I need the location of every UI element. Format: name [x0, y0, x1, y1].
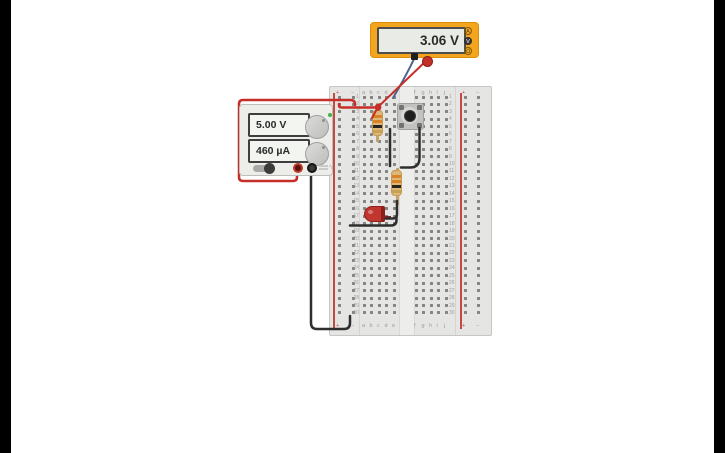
breadboard-hole[interactable]	[385, 200, 388, 203]
breadboard-hole[interactable]	[477, 237, 480, 240]
breadboard-hole[interactable]	[477, 200, 480, 203]
breadboard-hole[interactable]	[445, 237, 448, 240]
breadboard-hole[interactable]	[445, 207, 448, 210]
breadboard-hole[interactable]	[437, 185, 440, 188]
breadboard-hole[interactable]	[445, 311, 448, 314]
breadboard-hole[interactable]	[437, 133, 440, 136]
breadboard-hole[interactable]	[422, 133, 425, 136]
breadboard-hole[interactable]	[464, 192, 467, 195]
breadboard-hole[interactable]	[477, 96, 480, 99]
pushbutton-cap[interactable]	[404, 110, 416, 122]
breadboard-hole[interactable]	[338, 118, 341, 121]
breadboard-hole[interactable]	[445, 215, 448, 218]
breadboard-hole[interactable]	[437, 267, 440, 270]
breadboard-hole[interactable]	[430, 311, 433, 314]
breadboard-hole[interactable]	[437, 148, 440, 151]
breadboard-hole[interactable]	[464, 148, 467, 151]
breadboard-hole[interactable]	[385, 155, 388, 158]
breadboard-hole[interactable]	[338, 110, 341, 113]
breadboard-hole[interactable]	[338, 297, 341, 300]
breadboard-hole[interactable]	[378, 96, 381, 99]
breadboard-hole[interactable]	[437, 289, 440, 292]
breadboard-hole[interactable]	[445, 289, 448, 292]
breadboard-hole[interactable]	[445, 110, 448, 113]
breadboard-hole[interactable]	[370, 222, 373, 225]
breadboard-hole[interactable]	[464, 267, 467, 270]
breadboard-hole[interactable]	[464, 96, 467, 99]
breadboard-hole[interactable]	[370, 177, 373, 180]
breadboard-hole[interactable]	[378, 200, 381, 203]
breadboard-hole[interactable]	[437, 140, 440, 143]
breadboard-hole[interactable]	[363, 244, 366, 247]
breadboard-hole[interactable]	[378, 237, 381, 240]
breadboard-hole[interactable]	[422, 215, 425, 218]
breadboard-hole[interactable]	[378, 170, 381, 173]
breadboard-hole[interactable]	[437, 252, 440, 255]
breadboard-hole[interactable]	[437, 200, 440, 203]
breadboard-hole[interactable]	[430, 282, 433, 285]
breadboard-hole[interactable]	[477, 133, 480, 136]
breadboard-hole[interactable]	[363, 282, 366, 285]
breadboard-hole[interactable]	[422, 170, 425, 173]
breadboard-hole[interactable]	[477, 311, 480, 314]
breadboard-hole[interactable]	[437, 282, 440, 285]
breadboard-hole[interactable]	[393, 155, 396, 158]
breadboard-hole[interactable]	[338, 274, 341, 277]
breadboard-hole[interactable]	[338, 267, 341, 270]
breadboard-hole[interactable]	[477, 148, 480, 151]
breadboard-hole[interactable]	[477, 259, 480, 262]
breadboard-hole[interactable]	[422, 274, 425, 277]
breadboard-hole[interactable]	[393, 222, 396, 225]
breadboard-hole[interactable]	[477, 297, 480, 300]
breadboard-hole[interactable]	[437, 244, 440, 247]
breadboard-hole[interactable]	[338, 200, 341, 203]
breadboard-hole[interactable]	[370, 163, 373, 166]
breadboard-hole[interactable]	[477, 140, 480, 143]
breadboard-hole[interactable]	[422, 259, 425, 262]
breadboard-hole[interactable]	[363, 304, 366, 307]
breadboard-hole[interactable]	[422, 244, 425, 247]
breadboard-hole[interactable]	[363, 274, 366, 277]
breadboard-hole[interactable]	[370, 185, 373, 188]
breadboard-hole[interactable]	[445, 252, 448, 255]
breadboard-hole[interactable]	[370, 192, 373, 195]
breadboard-hole[interactable]	[464, 252, 467, 255]
breadboard-hole[interactable]	[378, 282, 381, 285]
breadboard-hole[interactable]	[385, 103, 388, 106]
breadboard-hole[interactable]	[445, 244, 448, 247]
breadboard-hole[interactable]	[370, 297, 373, 300]
breadboard-hole[interactable]	[338, 170, 341, 173]
breadboard-hole[interactable]	[393, 163, 396, 166]
breadboard-hole[interactable]	[385, 140, 388, 143]
breadboard-hole[interactable]	[385, 237, 388, 240]
breadboard-hole[interactable]	[393, 125, 396, 128]
breadboard-hole[interactable]	[430, 155, 433, 158]
breadboard-hole[interactable]	[370, 282, 373, 285]
breadboard-hole[interactable]	[437, 230, 440, 233]
breadboard-hole[interactable]	[385, 267, 388, 270]
breadboard-hole[interactable]	[393, 215, 396, 218]
breadboard-hole[interactable]	[464, 297, 467, 300]
breadboard-hole[interactable]	[415, 163, 418, 166]
breadboard-hole[interactable]	[393, 118, 396, 121]
breadboard-hole[interactable]	[464, 103, 467, 106]
breadboard-hole[interactable]	[464, 170, 467, 173]
breadboard-hole[interactable]	[437, 215, 440, 218]
breadboard-hole[interactable]	[338, 215, 341, 218]
breadboard-hole[interactable]	[430, 297, 433, 300]
breadboard-hole[interactable]	[363, 96, 366, 99]
breadboard-hole[interactable]	[363, 155, 366, 158]
breadboard-hole[interactable]	[477, 155, 480, 158]
breadboard-hole[interactable]	[464, 274, 467, 277]
breadboard-hole[interactable]	[415, 155, 418, 158]
breadboard-hole[interactable]	[430, 289, 433, 292]
breadboard-hole[interactable]	[415, 177, 418, 180]
breadboard-hole[interactable]	[363, 252, 366, 255]
breadboard-hole[interactable]	[477, 222, 480, 225]
breadboard-hole[interactable]	[415, 170, 418, 173]
multimeter-red-probe[interactable]	[422, 56, 433, 67]
breadboard-hole[interactable]	[393, 103, 396, 106]
breadboard-hole[interactable]	[363, 259, 366, 262]
breadboard-hole[interactable]	[437, 237, 440, 240]
breadboard-hole[interactable]	[393, 244, 396, 247]
breadboard-hole[interactable]	[363, 192, 366, 195]
breadboard-hole[interactable]	[464, 237, 467, 240]
breadboard-hole[interactable]	[464, 155, 467, 158]
breadboard-hole[interactable]	[370, 96, 373, 99]
breadboard-hole[interactable]	[393, 289, 396, 292]
breadboard-hole[interactable]	[338, 259, 341, 262]
breadboard-hole[interactable]	[370, 200, 373, 203]
breadboard-hole[interactable]	[445, 222, 448, 225]
breadboard-hole[interactable]	[385, 289, 388, 292]
breadboard-hole[interactable]	[430, 207, 433, 210]
breadboard-hole[interactable]	[430, 252, 433, 255]
breadboard-hole[interactable]	[393, 252, 396, 255]
breadboard-hole[interactable]	[378, 259, 381, 262]
breadboard-hole[interactable]	[378, 274, 381, 277]
breadboard-hole[interactable]	[393, 274, 396, 277]
breadboard-hole[interactable]	[445, 297, 448, 300]
breadboard-hole[interactable]	[477, 185, 480, 188]
breadboard-hole[interactable]	[338, 289, 341, 292]
breadboard-hole[interactable]	[415, 230, 418, 233]
breadboard-hole[interactable]	[370, 244, 373, 247]
breadboard-hole[interactable]	[445, 148, 448, 151]
breadboard-hole[interactable]	[430, 96, 433, 99]
breadboard-hole[interactable]	[437, 297, 440, 300]
breadboard-hole[interactable]	[464, 215, 467, 218]
breadboard-hole[interactable]	[363, 237, 366, 240]
breadboard-hole[interactable]	[385, 304, 388, 307]
breadboard-hole[interactable]	[430, 133, 433, 136]
breadboard-hole[interactable]	[338, 244, 341, 247]
breadboard-hole[interactable]	[393, 148, 396, 151]
breadboard-hole[interactable]	[363, 289, 366, 292]
breadboard-hole[interactable]	[430, 177, 433, 180]
psu-voltage-knob[interactable]	[305, 115, 329, 139]
breadboard-hole[interactable]	[464, 207, 467, 210]
breadboard-hole[interactable]	[430, 200, 433, 203]
breadboard-hole[interactable]	[378, 192, 381, 195]
breadboard-hole[interactable]	[477, 304, 480, 307]
breadboard-hole[interactable]	[422, 148, 425, 151]
breadboard-hole[interactable]	[363, 170, 366, 173]
breadboard-hole[interactable]	[422, 297, 425, 300]
breadboard-hole[interactable]	[445, 274, 448, 277]
breadboard-hole[interactable]	[430, 267, 433, 270]
breadboard-hole[interactable]	[385, 297, 388, 300]
breadboard-hole[interactable]	[338, 282, 341, 285]
breadboard-hole[interactable]	[437, 177, 440, 180]
breadboard-hole[interactable]	[378, 148, 381, 151]
breadboard-hole[interactable]	[437, 207, 440, 210]
psu-positive-terminal[interactable]	[293, 163, 303, 173]
breadboard-hole[interactable]	[437, 304, 440, 307]
breadboard-hole[interactable]	[464, 185, 467, 188]
breadboard-hole[interactable]	[393, 282, 396, 285]
breadboard-hole[interactable]	[430, 103, 433, 106]
breadboard-hole[interactable]	[338, 133, 341, 136]
breadboard-hole[interactable]	[464, 259, 467, 262]
breadboard-hole[interactable]	[415, 140, 418, 143]
breadboard-hole[interactable]	[385, 170, 388, 173]
breadboard-hole[interactable]	[370, 311, 373, 314]
breadboard-hole[interactable]	[370, 103, 373, 106]
breadboard-hole[interactable]	[385, 185, 388, 188]
breadboard-hole[interactable]	[445, 118, 448, 121]
breadboard-hole[interactable]	[464, 133, 467, 136]
breadboard-hole[interactable]	[363, 297, 366, 300]
breadboard-hole[interactable]	[338, 230, 341, 233]
power-supply[interactable]: 5.00 V 460 µA ϟ	[239, 104, 333, 176]
breadboard-hole[interactable]	[393, 140, 396, 143]
breadboard-hole[interactable]	[477, 230, 480, 233]
breadboard-hole[interactable]	[415, 215, 418, 218]
multimeter[interactable]: 3.06 V AVΩ	[370, 22, 479, 58]
breadboard-hole[interactable]	[445, 230, 448, 233]
breadboard-hole[interactable]	[338, 103, 341, 106]
breadboard-hole[interactable]	[430, 259, 433, 262]
breadboard-hole[interactable]	[422, 311, 425, 314]
breadboard-hole[interactable]	[378, 267, 381, 270]
breadboard-hole[interactable]	[464, 110, 467, 113]
breadboard-hole[interactable]	[464, 200, 467, 203]
breadboard-hole[interactable]	[437, 222, 440, 225]
breadboard-hole[interactable]	[415, 297, 418, 300]
multimeter-mode-V[interactable]: V	[464, 37, 472, 45]
breadboard-hole[interactable]	[430, 140, 433, 143]
breadboard-hole[interactable]	[338, 96, 341, 99]
breadboard-hole[interactable]	[415, 289, 418, 292]
breadboard-hole[interactable]	[338, 148, 341, 151]
breadboard-hole[interactable]	[370, 304, 373, 307]
breadboard-hole[interactable]	[477, 163, 480, 166]
breadboard-hole[interactable]	[363, 311, 366, 314]
breadboard-hole[interactable]	[393, 230, 396, 233]
breadboard-hole[interactable]	[445, 133, 448, 136]
breadboard-hole[interactable]	[437, 170, 440, 173]
breadboard-hole[interactable]	[430, 215, 433, 218]
breadboard-hole[interactable]	[437, 155, 440, 158]
breadboard-hole[interactable]	[415, 274, 418, 277]
breadboard-hole[interactable]	[477, 170, 480, 173]
breadboard-hole[interactable]	[385, 282, 388, 285]
breadboard-hole[interactable]	[477, 215, 480, 218]
breadboard-hole[interactable]	[422, 163, 425, 166]
breadboard-hole[interactable]	[430, 230, 433, 233]
breadboard-hole[interactable]	[338, 140, 341, 143]
breadboard-hole[interactable]	[422, 230, 425, 233]
breadboard-hole[interactable]	[464, 230, 467, 233]
breadboard-hole[interactable]	[363, 222, 366, 225]
breadboard-hole[interactable]	[385, 244, 388, 247]
breadboard-hole[interactable]	[385, 125, 388, 128]
breadboard-hole[interactable]	[464, 177, 467, 180]
breadboard-hole[interactable]	[437, 259, 440, 262]
breadboard-hole[interactable]	[415, 304, 418, 307]
breadboard-hole[interactable]	[385, 311, 388, 314]
breadboard-hole[interactable]	[445, 200, 448, 203]
breadboard-hole[interactable]	[370, 289, 373, 292]
breadboard-hole[interactable]	[477, 267, 480, 270]
breadboard-hole[interactable]	[363, 133, 366, 136]
breadboard-hole[interactable]	[422, 289, 425, 292]
breadboard-hole[interactable]	[445, 170, 448, 173]
breadboard-hole[interactable]	[363, 140, 366, 143]
breadboard-hole[interactable]	[430, 192, 433, 195]
multimeter-mode-Ω[interactable]: Ω	[464, 47, 472, 55]
breadboard-hole[interactable]	[385, 163, 388, 166]
breadboard-hole[interactable]	[437, 125, 440, 128]
breadboard-hole[interactable]	[422, 155, 425, 158]
breadboard-hole[interactable]	[378, 155, 381, 158]
breadboard-hole[interactable]	[385, 252, 388, 255]
breadboard-hole[interactable]	[393, 267, 396, 270]
breadboard-hole[interactable]	[338, 163, 341, 166]
breadboard-hole[interactable]	[385, 259, 388, 262]
breadboard-hole[interactable]	[445, 259, 448, 262]
breadboard-hole[interactable]	[378, 185, 381, 188]
pushbutton-pin[interactable]	[399, 123, 404, 128]
breadboard-hole[interactable]	[464, 222, 467, 225]
breadboard-hole[interactable]	[338, 222, 341, 225]
breadboard-hole[interactable]	[415, 252, 418, 255]
breadboard-hole[interactable]	[445, 163, 448, 166]
breadboard-hole[interactable]	[415, 200, 418, 203]
breadboard-hole[interactable]	[422, 282, 425, 285]
breadboard-hole[interactable]	[338, 237, 341, 240]
breadboard-hole[interactable]	[477, 207, 480, 210]
breadboard-hole[interactable]	[445, 185, 448, 188]
breadboard-hole[interactable]	[378, 297, 381, 300]
breadboard-hole[interactable]	[464, 163, 467, 166]
breadboard-hole[interactable]	[378, 289, 381, 292]
breadboard-hole[interactable]	[363, 267, 366, 270]
breadboard-hole[interactable]	[445, 96, 448, 99]
breadboard-hole[interactable]	[464, 282, 467, 285]
breadboard-hole[interactable]	[477, 282, 480, 285]
breadboard-hole[interactable]	[422, 222, 425, 225]
breadboard-hole[interactable]	[445, 140, 448, 143]
breadboard-hole[interactable]	[370, 148, 373, 151]
breadboard-hole[interactable]	[477, 118, 480, 121]
breadboard-hole[interactable]	[415, 222, 418, 225]
breadboard-hole[interactable]	[422, 207, 425, 210]
breadboard-hole[interactable]	[393, 207, 396, 210]
breadboard-hole[interactable]	[415, 267, 418, 270]
breadboard-hole[interactable]	[385, 192, 388, 195]
breadboard-hole[interactable]	[393, 110, 396, 113]
breadboard-hole[interactable]	[430, 148, 433, 151]
breadboard-hole[interactable]	[437, 311, 440, 314]
breadboard-hole[interactable]	[370, 140, 373, 143]
breadboard-hole[interactable]	[422, 200, 425, 203]
breadboard-hole[interactable]	[370, 230, 373, 233]
breadboard-hole[interactable]	[378, 311, 381, 314]
breadboard-hole[interactable]	[363, 118, 366, 121]
breadboard-hole[interactable]	[415, 192, 418, 195]
breadboard-hole[interactable]	[445, 282, 448, 285]
breadboard-hole[interactable]	[422, 252, 425, 255]
breadboard-hole[interactable]	[430, 237, 433, 240]
breadboard-hole[interactable]	[393, 304, 396, 307]
breadboard-hole[interactable]	[437, 163, 440, 166]
breadboard-hole[interactable]	[437, 110, 440, 113]
breadboard-hole[interactable]	[477, 244, 480, 247]
breadboard-hole[interactable]	[363, 200, 366, 203]
breadboard-hole[interactable]	[385, 96, 388, 99]
breadboard-hole[interactable]	[370, 252, 373, 255]
breadboard-hole[interactable]	[385, 133, 388, 136]
breadboard-hole[interactable]	[477, 110, 480, 113]
breadboard-hole[interactable]	[464, 244, 467, 247]
breadboard-hole[interactable]	[422, 304, 425, 307]
breadboard-hole[interactable]	[385, 274, 388, 277]
breadboard-hole[interactable]	[385, 110, 388, 113]
breadboard-hole[interactable]	[445, 177, 448, 180]
breadboard-hole[interactable]	[338, 185, 341, 188]
breadboard-hole[interactable]	[370, 170, 373, 173]
multimeter-black-probe[interactable]	[411, 53, 418, 60]
breadboard-hole[interactable]	[445, 192, 448, 195]
breadboard-hole[interactable]	[422, 96, 425, 99]
breadboard-hole[interactable]	[464, 125, 467, 128]
breadboard-hole[interactable]	[378, 244, 381, 247]
breadboard-hole[interactable]	[385, 222, 388, 225]
breadboard-hole[interactable]	[338, 311, 341, 314]
breadboard-hole[interactable]	[393, 96, 396, 99]
breadboard-hole[interactable]	[422, 185, 425, 188]
breadboard-hole[interactable]	[464, 304, 467, 307]
led[interactable]	[364, 206, 385, 222]
breadboard-hole[interactable]	[385, 207, 388, 210]
breadboard-hole[interactable]	[430, 185, 433, 188]
breadboard-hole[interactable]	[422, 267, 425, 270]
breadboard-hole[interactable]	[415, 96, 418, 99]
breadboard-hole[interactable]	[378, 222, 381, 225]
breadboard-hole[interactable]	[445, 103, 448, 106]
breadboard-hole[interactable]	[370, 259, 373, 262]
breadboard-hole[interactable]	[464, 289, 467, 292]
breadboard-hole[interactable]	[445, 125, 448, 128]
breadboard-hole[interactable]	[430, 163, 433, 166]
breadboard-hole[interactable]	[363, 185, 366, 188]
